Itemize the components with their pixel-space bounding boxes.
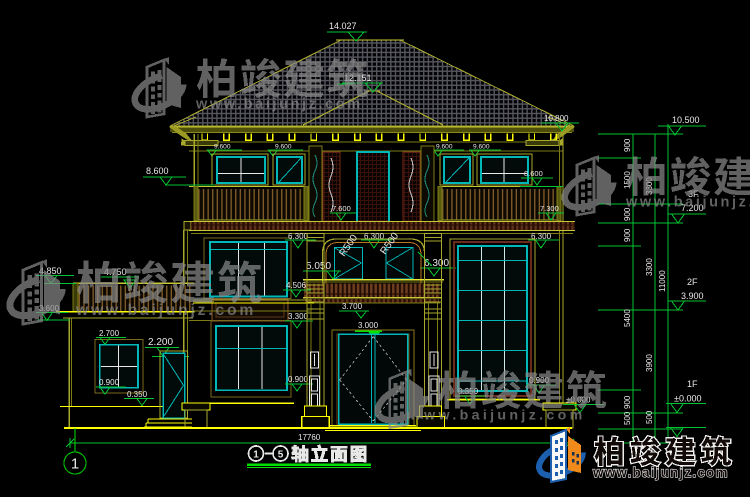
- svg-text:1: 1: [71, 456, 79, 473]
- svg-text:8.600: 8.600: [146, 166, 169, 176]
- svg-text:www.baijunjz.com: www.baijunjz.com: [625, 195, 750, 211]
- svg-text:11000: 11000: [658, 270, 667, 292]
- svg-text:9.600: 9.600: [214, 144, 231, 151]
- svg-text:3.700: 3.700: [342, 302, 363, 311]
- svg-text:3.000: 3.000: [358, 321, 379, 330]
- svg-text:6.300: 6.300: [424, 258, 449, 269]
- svg-text:5400: 5400: [623, 309, 632, 327]
- svg-text:1: 1: [253, 450, 259, 461]
- svg-text:8.600: 8.600: [524, 169, 543, 178]
- svg-text:3900: 3900: [645, 354, 654, 372]
- svg-text:900: 900: [623, 138, 632, 152]
- svg-text:5.050: 5.050: [306, 261, 331, 272]
- svg-text:9.600: 9.600: [436, 144, 453, 151]
- svg-text:500: 500: [645, 410, 654, 424]
- svg-text:www.baijunjz.com: www.baijunjz.com: [75, 302, 256, 319]
- svg-text:±0.000: ±0.000: [674, 394, 701, 404]
- svg-text:10.800: 10.800: [544, 114, 569, 123]
- svg-text:1F: 1F: [687, 379, 698, 389]
- svg-text:0.900: 0.900: [99, 378, 120, 387]
- svg-text:500: 500: [623, 411, 632, 425]
- svg-text:900: 900: [623, 228, 632, 242]
- svg-text:3.300: 3.300: [288, 312, 309, 321]
- svg-text:2.700: 2.700: [99, 329, 120, 338]
- svg-text:5: 5: [278, 450, 284, 461]
- svg-text:4.506: 4.506: [286, 281, 307, 290]
- svg-text:2F: 2F: [687, 277, 698, 287]
- svg-text:2.200: 2.200: [148, 337, 173, 348]
- svg-text:www.baijunjz.com: www.baijunjz.com: [195, 97, 363, 113]
- svg-text:7.600: 7.600: [332, 204, 351, 213]
- svg-text:3.900: 3.900: [681, 291, 704, 301]
- svg-text:900: 900: [623, 395, 632, 409]
- svg-text:10.500: 10.500: [672, 115, 700, 125]
- svg-text:9.600: 9.600: [473, 144, 490, 151]
- svg-text:3300: 3300: [645, 258, 654, 276]
- svg-text:www.baijunjz.com: www.baijunjz.com: [592, 465, 729, 480]
- svg-text:7.300: 7.300: [540, 204, 559, 213]
- svg-text:www.baijunjz.com: www.baijunjz.com: [409, 407, 586, 423]
- svg-text:17760: 17760: [298, 433, 321, 442]
- svg-text:14.027: 14.027: [329, 21, 357, 31]
- svg-text:0.350: 0.350: [127, 390, 148, 399]
- svg-text:9.600: 9.600: [275, 144, 292, 151]
- svg-text:0.900: 0.900: [288, 375, 309, 384]
